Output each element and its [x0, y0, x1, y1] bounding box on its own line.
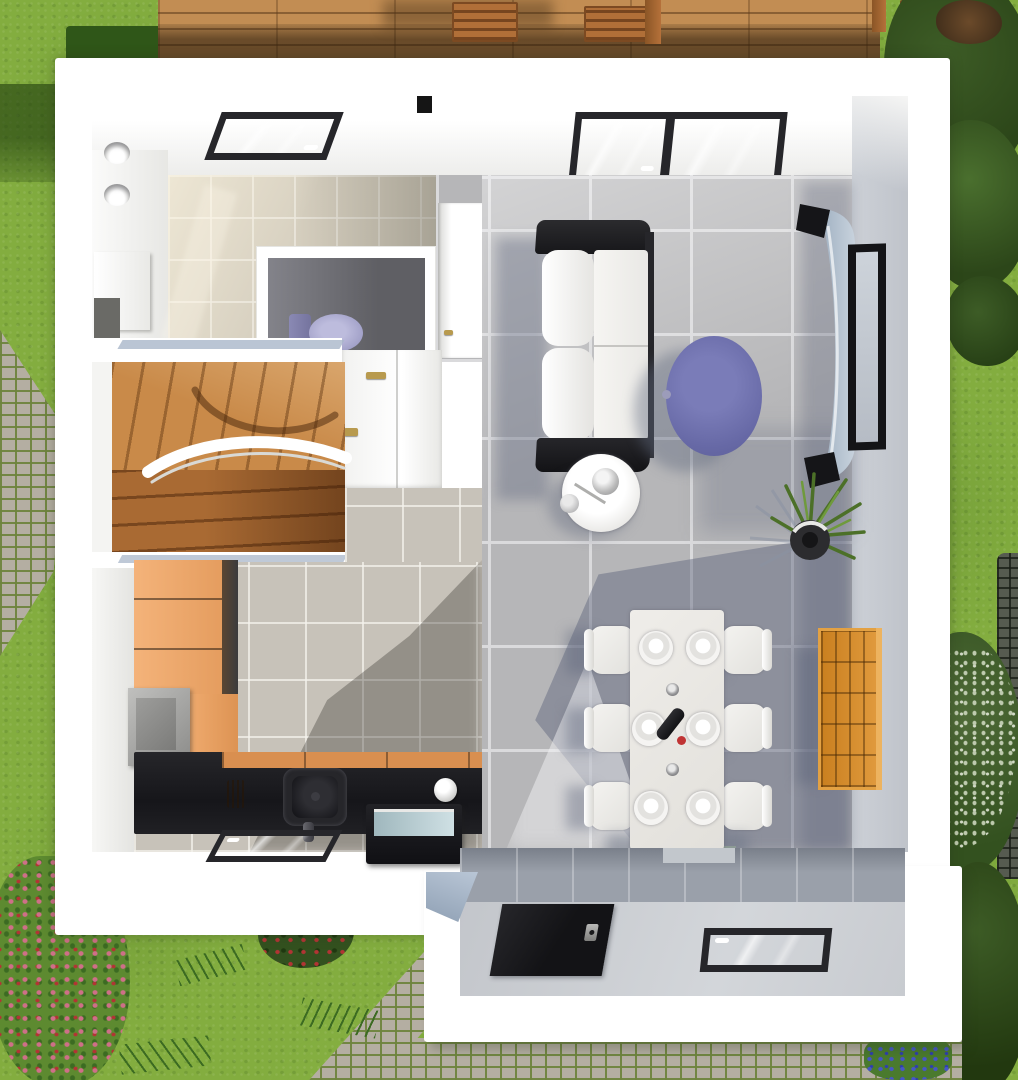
sofa-seat-divider [594, 345, 648, 347]
front-door [490, 904, 615, 976]
floor-plan-render [0, 0, 1018, 1080]
porch-window [700, 928, 833, 972]
utensil-pot [227, 780, 245, 808]
chair-back [762, 785, 772, 827]
oven [366, 804, 462, 864]
kettle [434, 778, 457, 802]
dining-chair [722, 704, 766, 752]
coffee-table [666, 336, 762, 456]
dining-chair [590, 626, 634, 674]
chair-back [762, 629, 772, 671]
kitchen-floor [345, 488, 482, 564]
sofa-back-cushion [542, 250, 594, 346]
deck-chair [452, 2, 518, 42]
stair-wall-cap [117, 340, 344, 349]
chair-back [584, 785, 594, 827]
roof-window-handle [640, 166, 654, 171]
wall-light [104, 184, 130, 206]
cube-shelf-side [876, 628, 882, 790]
roof-window-glass [669, 119, 780, 175]
porch-band-inset [663, 848, 735, 863]
lamp-base [560, 494, 579, 513]
roof-vent [417, 96, 432, 113]
living-roof-window [568, 112, 787, 182]
oven-glass-top [374, 809, 454, 836]
wine-bottle-cap [677, 736, 686, 745]
dining-chair [722, 782, 766, 830]
east-wall-ceiling-highlight [852, 96, 908, 206]
cube-shelf [818, 628, 880, 790]
tv-frame [848, 243, 886, 450]
closet-handle [366, 372, 386, 379]
plate [686, 631, 720, 665]
plate [686, 791, 720, 825]
door-handle [444, 330, 453, 335]
sofa-back-cushion [542, 348, 594, 440]
chair-back [584, 707, 594, 749]
appliance-top-inset [136, 698, 176, 750]
plate [639, 631, 673, 665]
plate [686, 712, 720, 746]
stair-railing [100, 360, 360, 570]
plate [634, 791, 668, 825]
window-handle [715, 938, 730, 943]
kitchen-window [205, 830, 342, 862]
candle-holder [666, 763, 679, 776]
cabinet-side-panel [222, 560, 238, 696]
dining-chair [590, 782, 634, 830]
roof-window-handle [303, 145, 319, 150]
tree-brown-patch [936, 0, 1002, 44]
sofa-armrest-top [535, 220, 651, 254]
potted-plant [742, 446, 872, 586]
chair-back [762, 707, 772, 749]
dining-chair [590, 704, 634, 752]
chair-back [584, 629, 594, 671]
kitchen-sink [283, 768, 347, 826]
deck-shadow [158, 24, 880, 62]
candle-holder [666, 683, 679, 696]
sink-drain [311, 792, 320, 801]
deck-post [872, 0, 886, 32]
coffee-table-leg [662, 390, 671, 399]
bathroom-roof-window [204, 112, 343, 160]
dining-chair [722, 626, 766, 674]
lamp-head [592, 468, 619, 495]
deck-post [645, 0, 661, 44]
closet-seam [396, 350, 398, 490]
deck-chair [584, 6, 648, 42]
wall-light [104, 142, 130, 164]
